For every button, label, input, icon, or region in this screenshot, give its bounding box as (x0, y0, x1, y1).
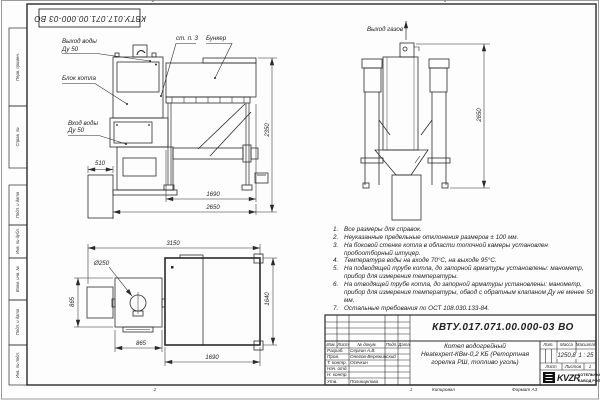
note-text: Остальные требования по ОСТ 108.030.133-… (344, 305, 597, 313)
note-number: 1. (333, 226, 344, 234)
note-text: Неуказанные предельные отклонения размер… (344, 234, 597, 242)
water-outlet-label-line1: Выход воды (62, 39, 97, 45)
zone-mark-top-1: 1 (444, 0, 447, 4)
note-number: 4. (333, 257, 344, 265)
tb-scale-value: 1 : 25 (577, 353, 594, 359)
note-item: 3.На боковой стенке котла в области топо… (333, 242, 597, 258)
front-dim-510: 510 (94, 161, 106, 167)
note-number: 7. (333, 305, 344, 313)
note-item: 6.На отводящей трубе котла, до запорной … (333, 281, 597, 305)
drawing-linework (0, 0, 600, 400)
note-number: 5. (333, 265, 344, 281)
title-block-doc-number: КВТУ.017.071.00.000-03 ВО (432, 323, 574, 333)
tb-mass-value: 1250,8 (556, 353, 576, 359)
tb-scale-label: Масштаб (576, 343, 597, 347)
tb-role-tkontr: Т. контр. (327, 361, 347, 366)
wall-item-label: ст. п. 3 (176, 36, 198, 42)
stamp-code: КВТУ.017.071.00.000-03 ВО (34, 14, 146, 22)
water-outlet-label-line2: Ду 50 (62, 47, 78, 53)
plan-dim-3150: 3150 (165, 241, 180, 247)
note-text: На отводящей трубе котла, до запорной ар… (344, 281, 597, 305)
front-leaders (62, 44, 232, 146)
plan-dim-1690: 1690 (204, 355, 219, 361)
margin-label-inv-dubl: Инв. № дубл. (16, 228, 20, 254)
note-item: 2.Неуказанные предельные отклонения разм… (333, 234, 597, 242)
tb-lit-label: Лит. (543, 343, 553, 347)
plan-dim-865-left: 865 (70, 296, 76, 308)
water-inlet-label-line1: Вход воды (68, 121, 98, 127)
front-dim-2350: 2350 (265, 122, 271, 137)
notes-list: 1.Все размеры для справок. 2.Неуказанные… (333, 226, 597, 312)
logo-org-line2: ЗАВОД РЭП (578, 379, 600, 383)
zone-mark-bottom-1: 1 (410, 388, 413, 393)
tb-name-utv: Поликарпова (350, 380, 378, 385)
side-dim-2650: 2650 (477, 107, 483, 122)
tb-mass-label: Масса (560, 343, 573, 347)
note-number: 6. (333, 281, 344, 305)
tb-role-utv: Утв. (327, 380, 337, 385)
note-item: 1.Все размеры для справок. (333, 226, 597, 234)
water-inlet-label-line2: Ду 50 (68, 128, 84, 134)
zone-mark-top-2: 2 (152, 0, 155, 4)
sheet-edge (2, 1, 599, 400)
tb-header-izm: Изм. (326, 342, 335, 346)
tb-header-doc: № докум. (357, 342, 376, 346)
margin-label-inv-podl: Инв. № подл. (16, 352, 20, 378)
margin-label-vzam-inv: Взам. инв. № (16, 266, 20, 292)
front-dim-1690: 1690 (205, 192, 220, 198)
note-text: Все размеры для справок. (344, 226, 597, 234)
note-text: На боковой стенке котла в области топочн… (344, 242, 597, 258)
margin-label-sprav: Справ. № (16, 127, 20, 146)
tb-name-razrab: Сергин А.В. (350, 349, 376, 354)
tb-sheets-value: 1 (589, 364, 591, 368)
product-title-line3: горелка РШ, топливо уголь) (431, 359, 518, 366)
note-text: На подводящей трубе котла, до запорной а… (344, 265, 597, 281)
boiler-block-label: Блок котла (62, 76, 96, 82)
note-number: 2. (333, 234, 344, 242)
product-title-line1: Котел водогрейный (444, 344, 506, 351)
margin-label-podp-data-2: Подп. и дата (16, 309, 20, 335)
drawing-sheet: Перв. примен. Справ. № Подп. и дата Инв.… (0, 0, 600, 400)
front-dim-2650: 2650 (205, 205, 220, 211)
logo-org-line1: КОТЕЛЬНЫЙ (578, 373, 600, 377)
copied-label: Копировал (432, 388, 455, 393)
logo-brand-text: KVZR (557, 374, 580, 383)
zone-mark-bottom-2: 2 (154, 388, 157, 393)
chimney-diameter-label: Ø250 (94, 261, 109, 267)
tb-sheet-label: Лист (545, 364, 556, 368)
tb-sheets-label: Листов (565, 364, 581, 368)
gas-outlet-label: Выход газов (367, 27, 403, 33)
note-number: 3. (333, 242, 344, 258)
note-item: 7.Остальные требования по ОСТ 108.030.13… (333, 305, 597, 313)
plan-dim-1640: 1640 (265, 291, 271, 306)
tb-header-podp: Подп. (386, 342, 398, 346)
hopper-label: Бункер (206, 36, 226, 42)
side-view (361, 21, 490, 220)
tb-header-data: Дата (398, 342, 410, 346)
tb-role-prov: Пров. (327, 355, 339, 360)
margin-label-podp-data-1: Подп. и дата (16, 192, 20, 218)
tb-role-nkontr: Н. контр. (327, 373, 348, 378)
tb-role-razrab: Разраб. (327, 349, 344, 354)
format-label: Формат А3 (512, 388, 537, 393)
tb-role-nachotd: Нач. отд. (327, 367, 348, 372)
note-item: 5.На подводящей трубе котла, до запорной… (333, 265, 597, 281)
tb-name-prov: Онегов-Вережинский (350, 355, 396, 360)
tb-name-tkontr: Осечкин (350, 361, 368, 366)
tb-header-list: Лист (337, 342, 348, 346)
plan-dim-865-bottom: 865 (135, 341, 147, 347)
front-view (62, 44, 277, 220)
margin-label-perv-primen: Перв. примен. (16, 53, 20, 81)
